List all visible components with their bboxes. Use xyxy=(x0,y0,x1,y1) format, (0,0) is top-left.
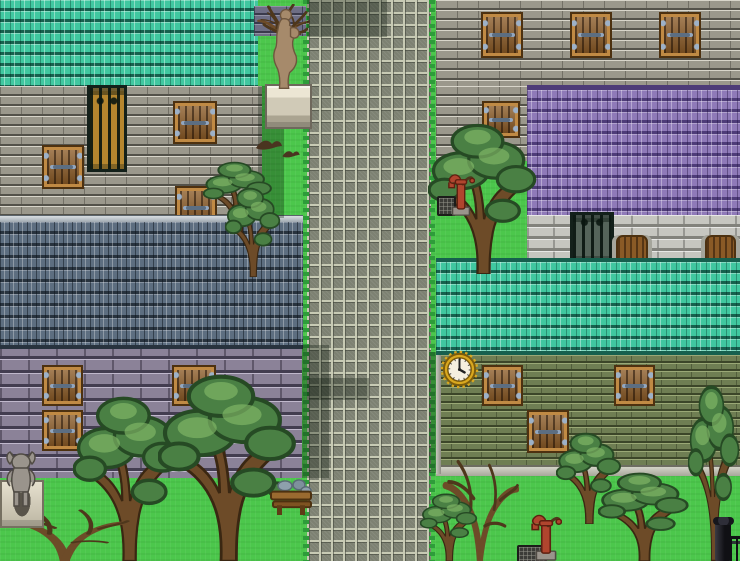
game-viewport[interactable] xyxy=(0,0,740,561)
bird-icon xyxy=(254,136,284,152)
northwest-window-2 xyxy=(175,103,215,142)
east-window-3 xyxy=(616,367,653,404)
northeast-iron-gate[interactable] xyxy=(570,212,614,264)
northwest-building-roof xyxy=(0,0,258,90)
water-pump-icon[interactable] xyxy=(447,170,475,216)
northwest-iron-gate[interactable] xyxy=(87,85,127,172)
east-window-1 xyxy=(484,367,521,404)
northeast-window-3 xyxy=(661,14,699,56)
tree-icon xyxy=(598,468,690,561)
tree-icon xyxy=(428,116,538,274)
tree-icon xyxy=(225,183,281,277)
iron-fence-post xyxy=(715,523,731,561)
tree-icon xyxy=(688,376,740,561)
statue-icon xyxy=(262,4,308,92)
northeast-wooden-door-2[interactable] xyxy=(705,235,736,260)
shadow-road-south xyxy=(307,378,369,400)
shadow-road-north xyxy=(307,0,387,37)
northeast-wooden-door-1[interactable] xyxy=(616,235,648,260)
shadow-east-building xyxy=(429,352,436,473)
northeast-window-2 xyxy=(572,14,610,56)
bird-icon xyxy=(281,148,301,159)
tree-icon xyxy=(420,490,478,561)
road-east-grass-fringe xyxy=(429,0,435,561)
water-pump-icon[interactable] xyxy=(530,510,562,561)
tree-icon xyxy=(158,365,298,561)
gargoyle-icon xyxy=(4,448,38,510)
iron-fence-bars xyxy=(730,536,740,561)
wall-clock-icon xyxy=(440,350,479,389)
shadow-west-building xyxy=(302,345,329,478)
northeast-building-roof xyxy=(527,85,740,220)
northwest-window-1 xyxy=(44,147,82,187)
northeast-window-1 xyxy=(483,14,521,56)
